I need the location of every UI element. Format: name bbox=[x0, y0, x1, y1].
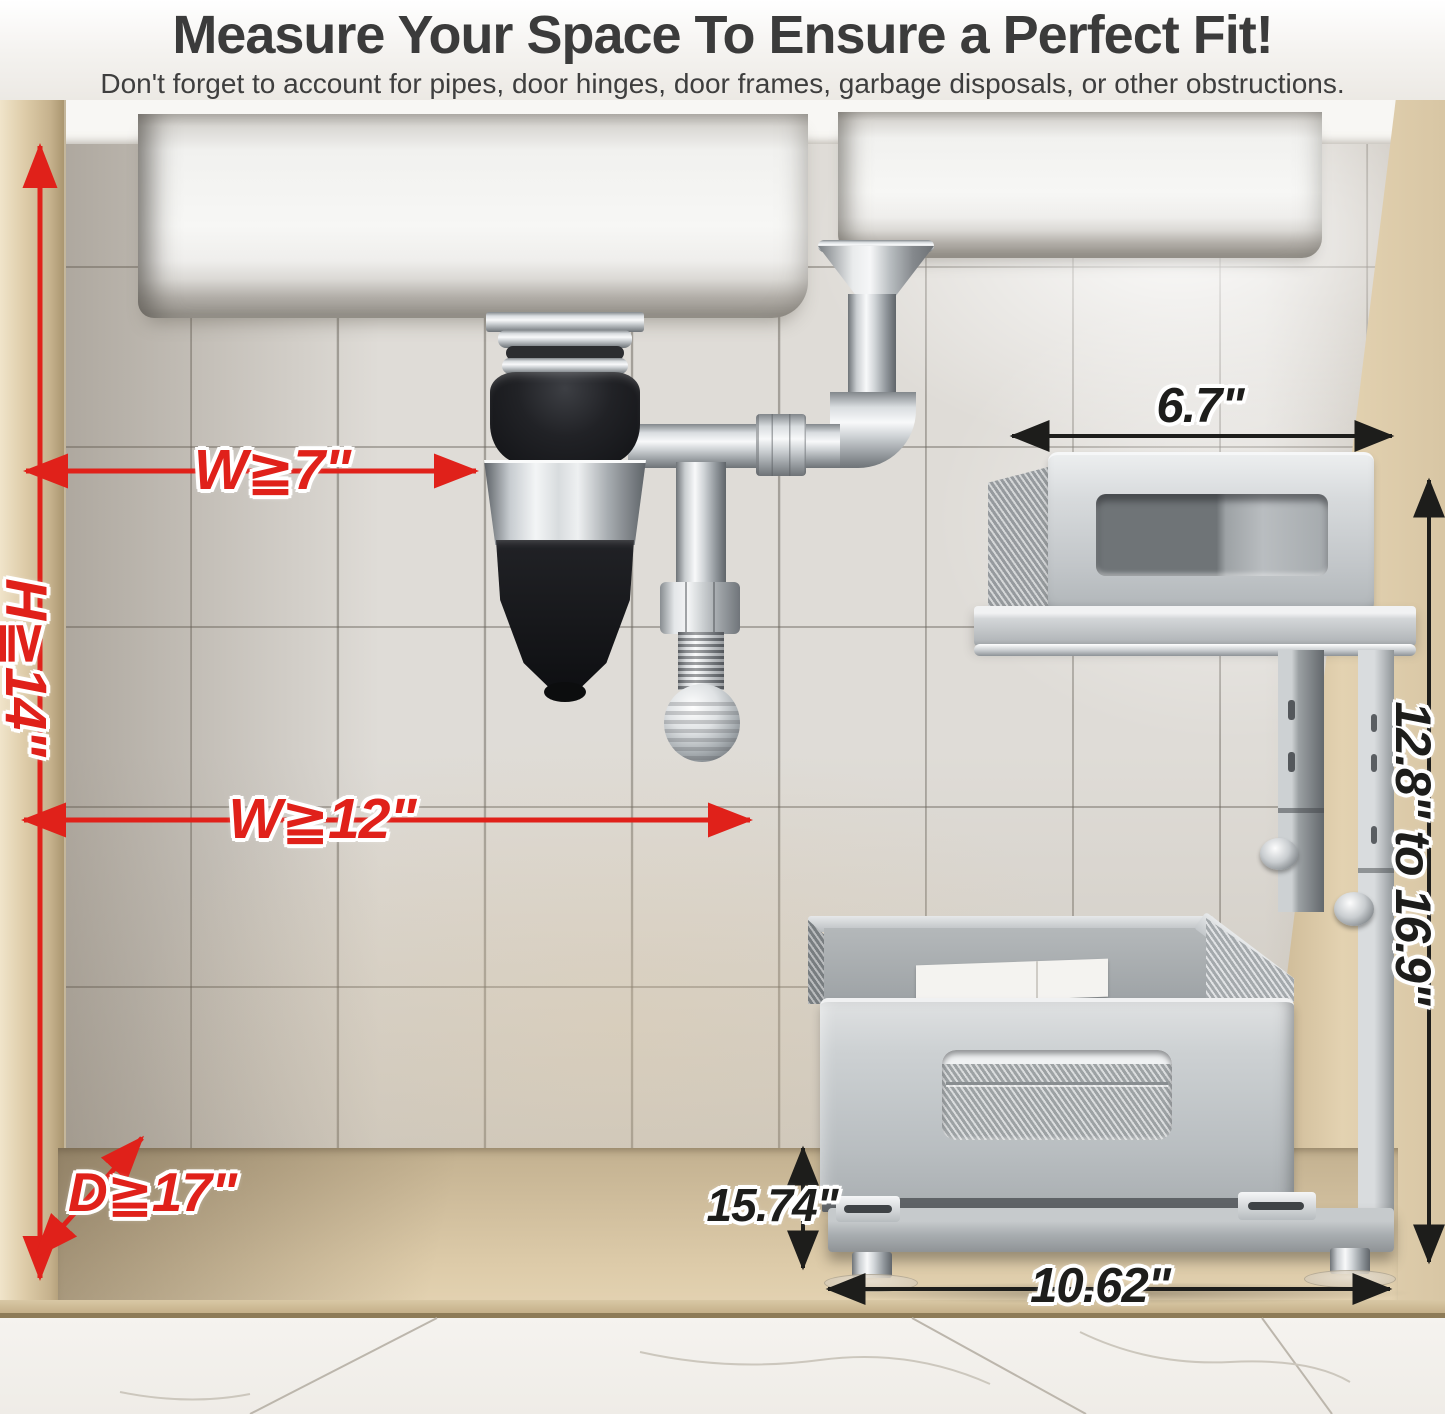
marble-seam bbox=[1262, 1318, 1332, 1414]
label-shelf-width: 6.7" bbox=[1156, 378, 1243, 434]
label-width-min-top: W≧7" bbox=[194, 437, 350, 503]
marble-seam bbox=[250, 1318, 437, 1414]
label-width-min-mid: W≧12" bbox=[229, 786, 416, 852]
under-sink-measurement-infographic: H≧14" W≧7" W≧12" D≧17" 6.7" 12.8" to 16.… bbox=[0, 0, 1445, 1414]
label-drawer-width: 10.62" bbox=[1030, 1258, 1170, 1314]
label-adjustable-height: 12.8" to 16.9" bbox=[1384, 701, 1442, 1004]
marble-vein bbox=[640, 1352, 990, 1384]
label-height-min: H≧14" bbox=[0, 578, 60, 756]
label-depth-min: D≧17" bbox=[68, 1160, 236, 1224]
label-drawer-depth: 15.74" bbox=[707, 1178, 838, 1232]
marble-vein bbox=[1080, 1332, 1350, 1382]
marble-vein bbox=[120, 1392, 250, 1400]
